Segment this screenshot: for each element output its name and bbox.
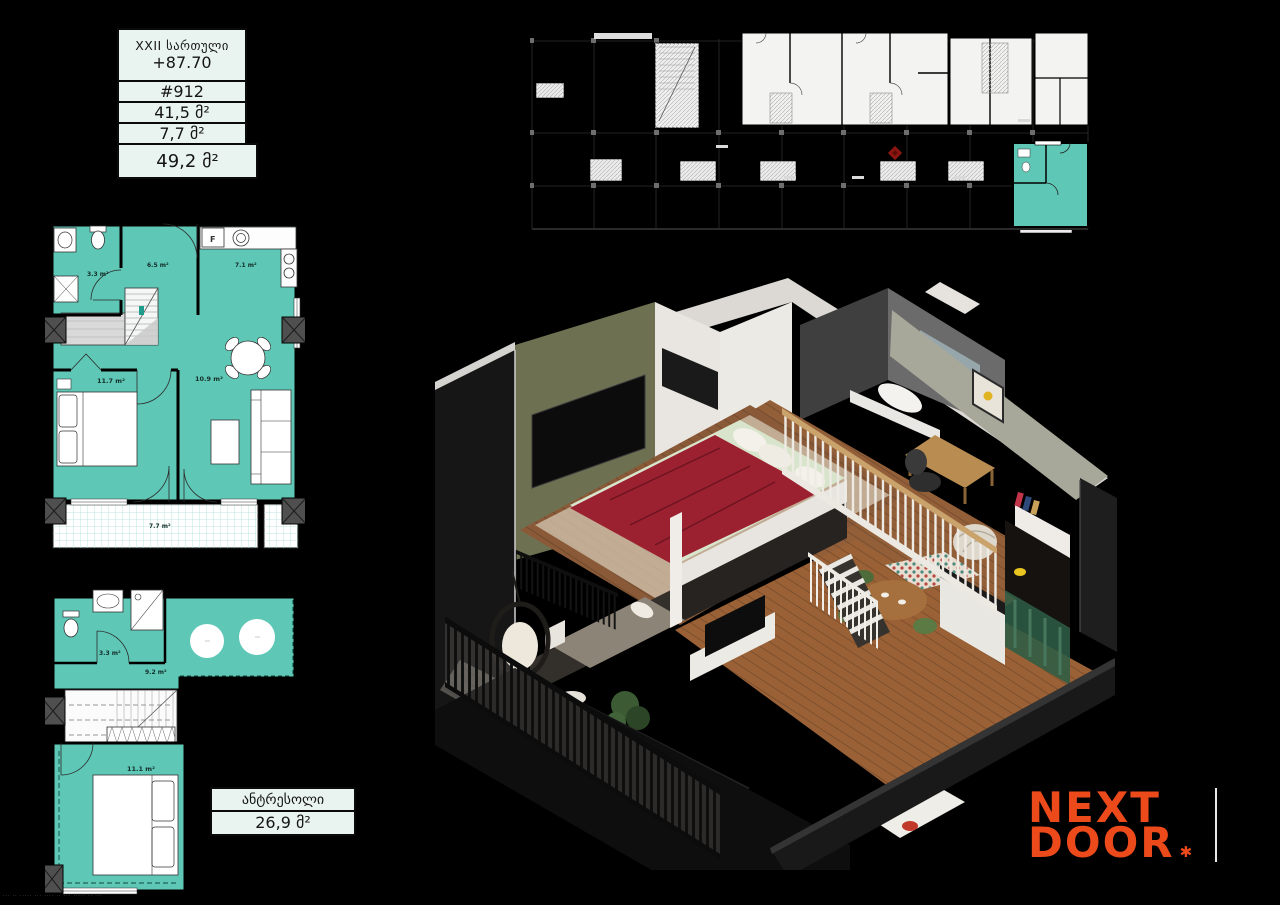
- next-door-logo: NEXT DOOR✱: [1028, 791, 1228, 861]
- hall-area-label: 6.5 m²: [147, 262, 169, 269]
- apartment-3d-render: [420, 270, 1120, 870]
- mezz-wardrobe: [107, 727, 175, 743]
- bedroom-area-label: 11.7 m²: [97, 377, 125, 385]
- unit-number: #912: [160, 82, 204, 101]
- bathroom-area-label: 3.3 m²: [87, 271, 109, 278]
- mezz-bedroom: 11.1 m²: [53, 743, 185, 894]
- unit-number-row: #912: [117, 80, 247, 103]
- mezz-bedroom-area-label: 11.1 m²: [127, 765, 155, 773]
- kitchen-area-label: 7.1 m²: [235, 262, 257, 269]
- logo-line2: DOOR✱: [1028, 826, 1228, 861]
- plan-bed: [57, 379, 137, 466]
- building-key-plan: [530, 33, 1090, 233]
- floor-plan-main: 7.7 m² F: [45, 218, 305, 553]
- logo-divider-line: [1215, 788, 1217, 862]
- render-vent-block: [925, 282, 980, 314]
- unit-info-table: XXII სართული +87.70 #912 41,5 მ² 7,7 მ² …: [117, 28, 258, 179]
- key-plan-highlight-unit: [1013, 141, 1088, 233]
- render-partition-wall: [670, 512, 682, 628]
- floor-row: XXII სართული +87.70: [117, 28, 247, 82]
- balcony-area-label: 7.7 m²: [149, 523, 171, 530]
- floor-label: XXII სართული: [135, 38, 229, 53]
- living-area-row: 41,5 მ²: [117, 101, 247, 124]
- total-area-value: 49,2 მ²: [156, 151, 218, 172]
- elevation-value: +87.70: [152, 53, 211, 72]
- mezzanine-label-box: ანტრესოლი 26,9 მ²: [210, 789, 356, 836]
- living-area-label: 10.9 m²: [195, 375, 223, 383]
- logo-flower-icon: ✱: [1180, 843, 1193, 861]
- mezz-bathroom-area-label: 3.3 m²: [99, 650, 121, 657]
- balcony-area-value: 7,7 მ²: [159, 124, 204, 143]
- living-area-value: 41,5 მ²: [154, 103, 209, 122]
- mezz-open-area-label: 9.2 m²: [145, 669, 167, 676]
- total-area-row: 49,2 მ²: [117, 143, 258, 179]
- flyer-canvas: XXII სართული +87.70 #912 41,5 მ² 7,7 მ² …: [0, 0, 1280, 905]
- mezzanine-area-value: 26,9 მ²: [210, 810, 356, 836]
- plan-balcony: 7.7 m²: [53, 504, 298, 548]
- plot-stamp: ··· ·· ····· ··· ···· ·· ··· ····· ·· ··…: [3, 894, 103, 899]
- balcony-area-row: 7,7 მ²: [117, 122, 247, 145]
- floor-plan-mezzanine: 3.3 m² 9.2 m²: [45, 575, 305, 900]
- render-right-wall: [1080, 478, 1117, 652]
- mezzanine-title: ანტრესოლი: [210, 787, 356, 812]
- fridge-label: F: [210, 235, 215, 244]
